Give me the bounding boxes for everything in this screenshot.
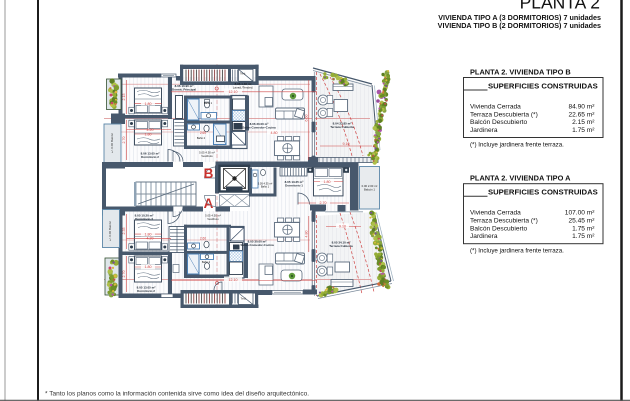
svg-text:9.10: 9.10 xyxy=(339,225,346,229)
svg-text:Lavad./Tended.: Lavad./Tended. xyxy=(233,86,254,90)
svg-text:+/- 0.00 Balcón: +/- 0.00 Balcón xyxy=(108,221,112,242)
svg-text:22.65 m²: 22.65 m² xyxy=(568,111,595,118)
svg-text:1.75 m²: 1.75 m² xyxy=(572,233,595,240)
svg-text:PLANTA 2: PLANTA 2 xyxy=(520,0,600,13)
svg-text:Balcón Descubierto: Balcón Descubierto xyxy=(470,225,528,232)
svg-text:Baño 1: Baño 1 xyxy=(204,101,213,105)
svg-text:* Tanto los planos como la inf: * Tanto los planos como la información c… xyxy=(45,391,309,398)
svg-text:Terraza Descubierta (*): Terraza Descubierta (*) xyxy=(470,111,538,118)
svg-text:Jardinera: Jardinera xyxy=(470,127,498,134)
svg-text:4.80: 4.80 xyxy=(305,231,309,238)
svg-text:PLANTA 2. VIVIENDA TIPO B: PLANTA 2. VIVIENDA TIPO B xyxy=(470,68,571,77)
svg-text:VIVIENDA TIPO B (2 DORMITORIOS: VIVIENDA TIPO B (2 DORMITORIOS) 7 unidad… xyxy=(438,21,601,30)
svg-text:Dormitorio 1: Dormitorio 1 xyxy=(285,184,303,188)
svg-text:12.10: 12.10 xyxy=(229,90,238,94)
svg-text:6.60: 6.60 xyxy=(305,115,309,122)
svg-text:Terraza Cubierta: Terraza Cubierta xyxy=(330,125,354,129)
svg-text:Vestíbulo: Vestíbulo xyxy=(207,217,219,221)
svg-text:Dormitorio 2: Dormitorio 2 xyxy=(137,289,155,293)
svg-text:1.80: 1.80 xyxy=(145,265,152,269)
svg-text:Jardinera: Jardinera xyxy=(470,233,498,240)
svg-text:Balcón 1: Balcón 1 xyxy=(364,188,375,192)
svg-text:Balcón Descubierto: Balcón Descubierto xyxy=(470,119,528,126)
svg-text:2.60: 2.60 xyxy=(200,236,206,240)
svg-text:84.90 m²: 84.90 m² xyxy=(568,104,595,111)
svg-text:2.70: 2.70 xyxy=(122,137,126,144)
svg-text:9.10: 9.10 xyxy=(343,142,350,146)
svg-text:2.70: 2.70 xyxy=(122,271,126,278)
svg-text:PLANTA 2. VIVIENDA TIPO A: PLANTA 2. VIVIENDA TIPO A xyxy=(470,174,571,183)
svg-text:Vivienda Cerrada: Vivienda Cerrada xyxy=(470,104,521,111)
svg-text:2.35: 2.35 xyxy=(122,228,126,235)
svg-text:1.80: 1.80 xyxy=(324,180,331,184)
svg-text:Terraza Descubierta (*): Terraza Descubierta (*) xyxy=(470,218,538,225)
svg-text:2.15: 2.15 xyxy=(122,94,126,101)
svg-text:SUPERFICIES CONSTRUIDAS: SUPERFICIES CONSTRUIDAS xyxy=(488,188,598,197)
svg-text:Tend.: Tend. xyxy=(240,73,246,76)
svg-text:4.80: 4.80 xyxy=(271,131,278,135)
svg-text:25.45 m²: 25.45 m² xyxy=(568,218,595,225)
svg-text:B: B xyxy=(204,166,214,181)
svg-text:Baño 2: Baño 2 xyxy=(202,260,211,264)
svg-text:Baño 1: Baño 1 xyxy=(261,185,270,189)
svg-text:Dormitorio 2: Dormitorio 2 xyxy=(141,155,159,159)
svg-text:2.15 m²: 2.15 m² xyxy=(572,119,595,126)
svg-text:SUPERFICIES CONSTRUIDAS: SUPERFICIES CONSTRUIDAS xyxy=(488,82,598,91)
svg-text:Vivienda Cerrada: Vivienda Cerrada xyxy=(470,210,521,217)
svg-text:107.00 m²: 107.00 m² xyxy=(565,210,595,217)
svg-text:1.80: 1.80 xyxy=(145,133,152,137)
svg-text:Salón-Comedor-Cocina: Salón-Comedor-Cocina xyxy=(240,243,274,247)
svg-text:+/- 0.00 Balcón: +/- 0.00 Balcón xyxy=(110,133,114,154)
svg-text:Salón-Comedor-Cocina: Salón-Comedor-Cocina xyxy=(242,125,276,129)
svg-text:12.10: 12.10 xyxy=(229,278,238,282)
svg-text:Vestíbulo: Vestíbulo xyxy=(201,154,213,158)
svg-text:2.70: 2.70 xyxy=(320,201,327,205)
svg-text:4.20: 4.20 xyxy=(147,237,154,241)
svg-text:1.75 m²: 1.75 m² xyxy=(572,127,595,134)
svg-text:Dormit. Principal: Dormit. Principal xyxy=(172,87,196,91)
svg-text:1.80: 1.80 xyxy=(145,102,152,106)
svg-text:1.75 m²: 1.75 m² xyxy=(572,225,595,232)
svg-text:4.20: 4.20 xyxy=(147,128,154,132)
svg-text:(*) Incluye jardinera frente t: (*) Incluye jardinera frente terraza. xyxy=(470,142,564,149)
svg-text:Terraza Cubierta: Terraza Cubierta xyxy=(329,244,353,248)
svg-text:2.60: 2.60 xyxy=(200,131,206,135)
svg-text:Baño 2: Baño 2 xyxy=(197,136,206,140)
svg-text:(*) Incluye jardinera frente t: (*) Incluye jardinera frente terraza. xyxy=(470,248,564,255)
svg-text:Tend.: Tend. xyxy=(241,298,247,301)
svg-text:Dormitorio 3: Dormitorio 3 xyxy=(135,217,153,221)
